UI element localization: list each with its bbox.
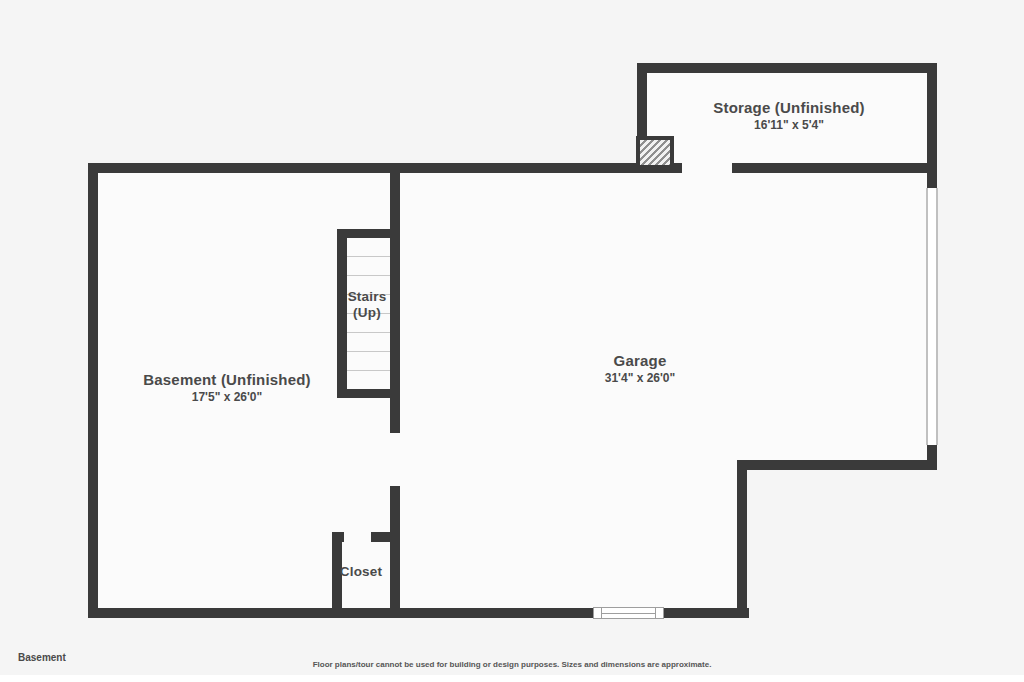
- wall-storage-top: [637, 63, 937, 73]
- wall-divider-lower: [390, 486, 400, 618]
- garage-door-opening-interior: [390, 433, 400, 486]
- wall-storage-left: [637, 63, 647, 141]
- basement-room-label: Basement (Unfinished) 17'5" x 26'0": [143, 371, 311, 405]
- storage-room-label: Storage (Unfinished) 16'11" x 5'4": [713, 99, 865, 133]
- lower-floor: [93, 463, 742, 613]
- wall-basement-left: [88, 163, 98, 618]
- window-cap-left: [593, 607, 602, 619]
- stairs-name: Stairs: [348, 289, 387, 305]
- wall-top-left-segment: [88, 163, 682, 173]
- wall-garage-right-lower: [927, 445, 937, 470]
- window-cap-right: [655, 607, 664, 619]
- wall-stairs-bottom: [337, 389, 397, 398]
- wall-closet-top-left: [332, 532, 344, 542]
- wall-stairs-top: [337, 229, 397, 238]
- window-pane-line: [602, 613, 655, 614]
- floor-plan-canvas: Storage (Unfinished) 16'11" x 5'4" Basem…: [0, 0, 1024, 682]
- garage-overhead-door: [926, 188, 938, 445]
- floor-selector-label: Basement: [18, 652, 66, 663]
- storage-room-dimensions: 16'11" x 5'4": [713, 119, 865, 133]
- window-bottom-wall: [593, 607, 664, 619]
- bottom-white-strip: [0, 675, 1024, 682]
- garage-room-dimensions: 31'4" x 26'0": [605, 372, 675, 386]
- hatched-column: [636, 136, 674, 169]
- basement-garage-floor: [93, 168, 930, 463]
- disclaimer-text: Floor plans/tour cannot be used for buil…: [313, 660, 712, 669]
- basement-room-name: Basement (Unfinished): [143, 371, 311, 388]
- closet-label: Closet: [340, 564, 382, 580]
- window-pane: [602, 607, 655, 619]
- wall-garage-notch-vertical: [737, 460, 747, 618]
- closet-door-opening: [344, 532, 371, 542]
- wall-top-right-segment: [732, 163, 937, 173]
- stairs-label: Stairs (Up): [348, 289, 387, 320]
- storage-room-name: Storage (Unfinished): [713, 99, 865, 116]
- storage-door-opening: [682, 163, 732, 173]
- wall-closet-top-right: [371, 532, 397, 542]
- wall-stairs-left: [337, 229, 347, 397]
- garage-room-label: Garage 31'4" x 26'0": [605, 352, 675, 386]
- wall-garage-notch-horizontal: [737, 460, 937, 470]
- stairs-direction: (Up): [348, 305, 387, 321]
- basement-room-dimensions: 17'5" x 26'0": [143, 391, 311, 405]
- closet-name: Closet: [340, 564, 382, 580]
- garage-room-name: Garage: [605, 352, 675, 369]
